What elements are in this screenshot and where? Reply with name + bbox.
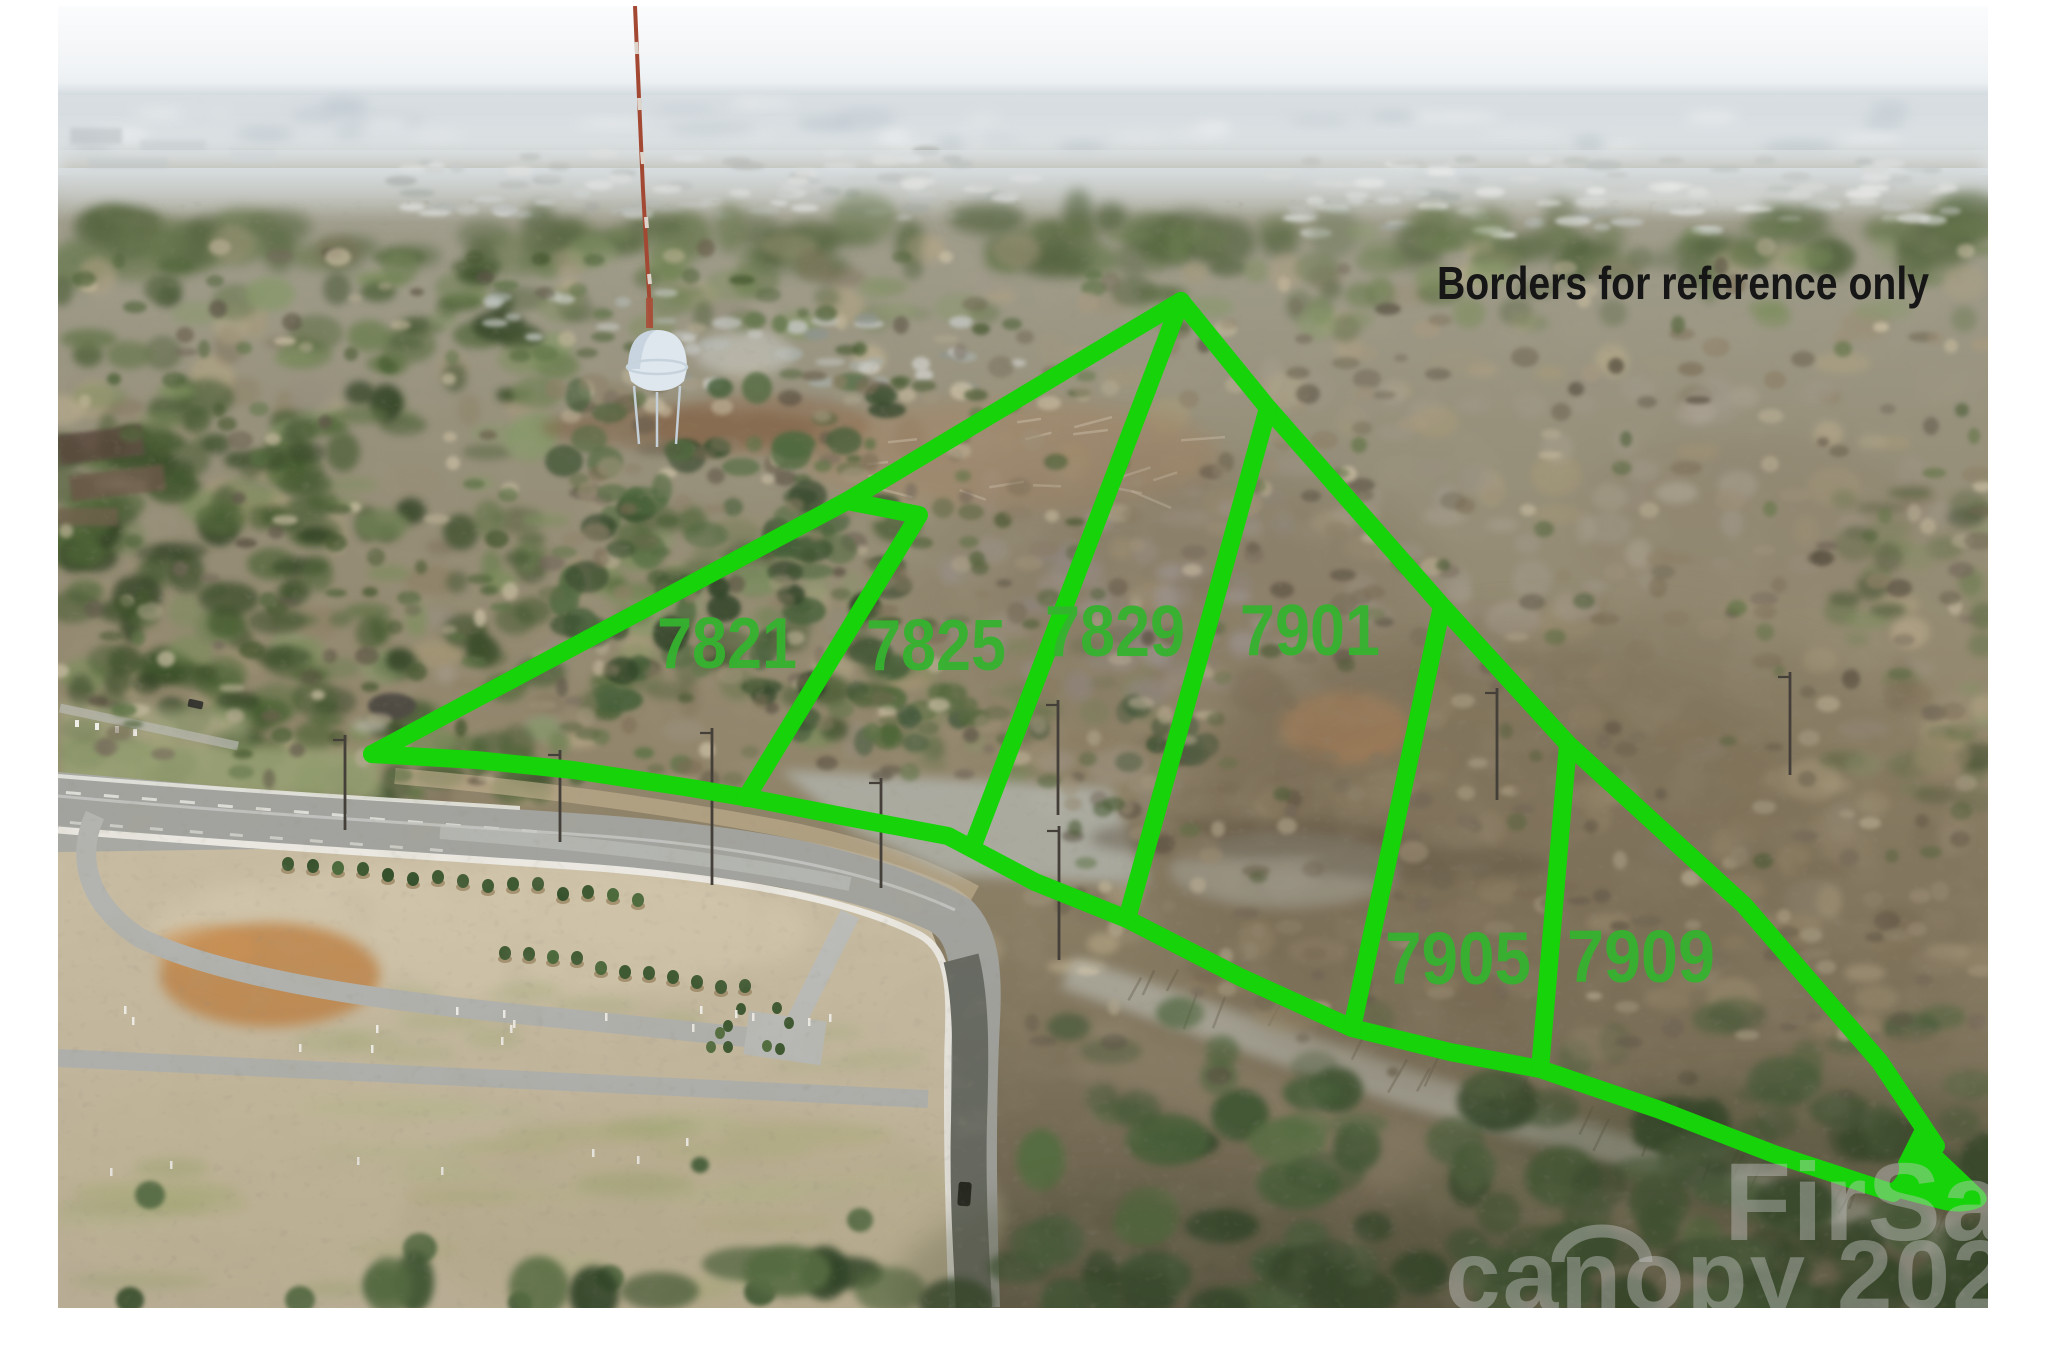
svg-text:7821: 7821 <box>657 604 797 684</box>
svg-text:7909: 7909 <box>1567 915 1715 998</box>
svg-text:7905: 7905 <box>1385 917 1531 1000</box>
svg-text:Borders for reference only: Borders for reference only <box>1437 257 1929 309</box>
svg-text:7829: 7829 <box>1045 592 1185 672</box>
svg-text:7901: 7901 <box>1240 591 1380 671</box>
svg-text:7825: 7825 <box>866 606 1006 686</box>
